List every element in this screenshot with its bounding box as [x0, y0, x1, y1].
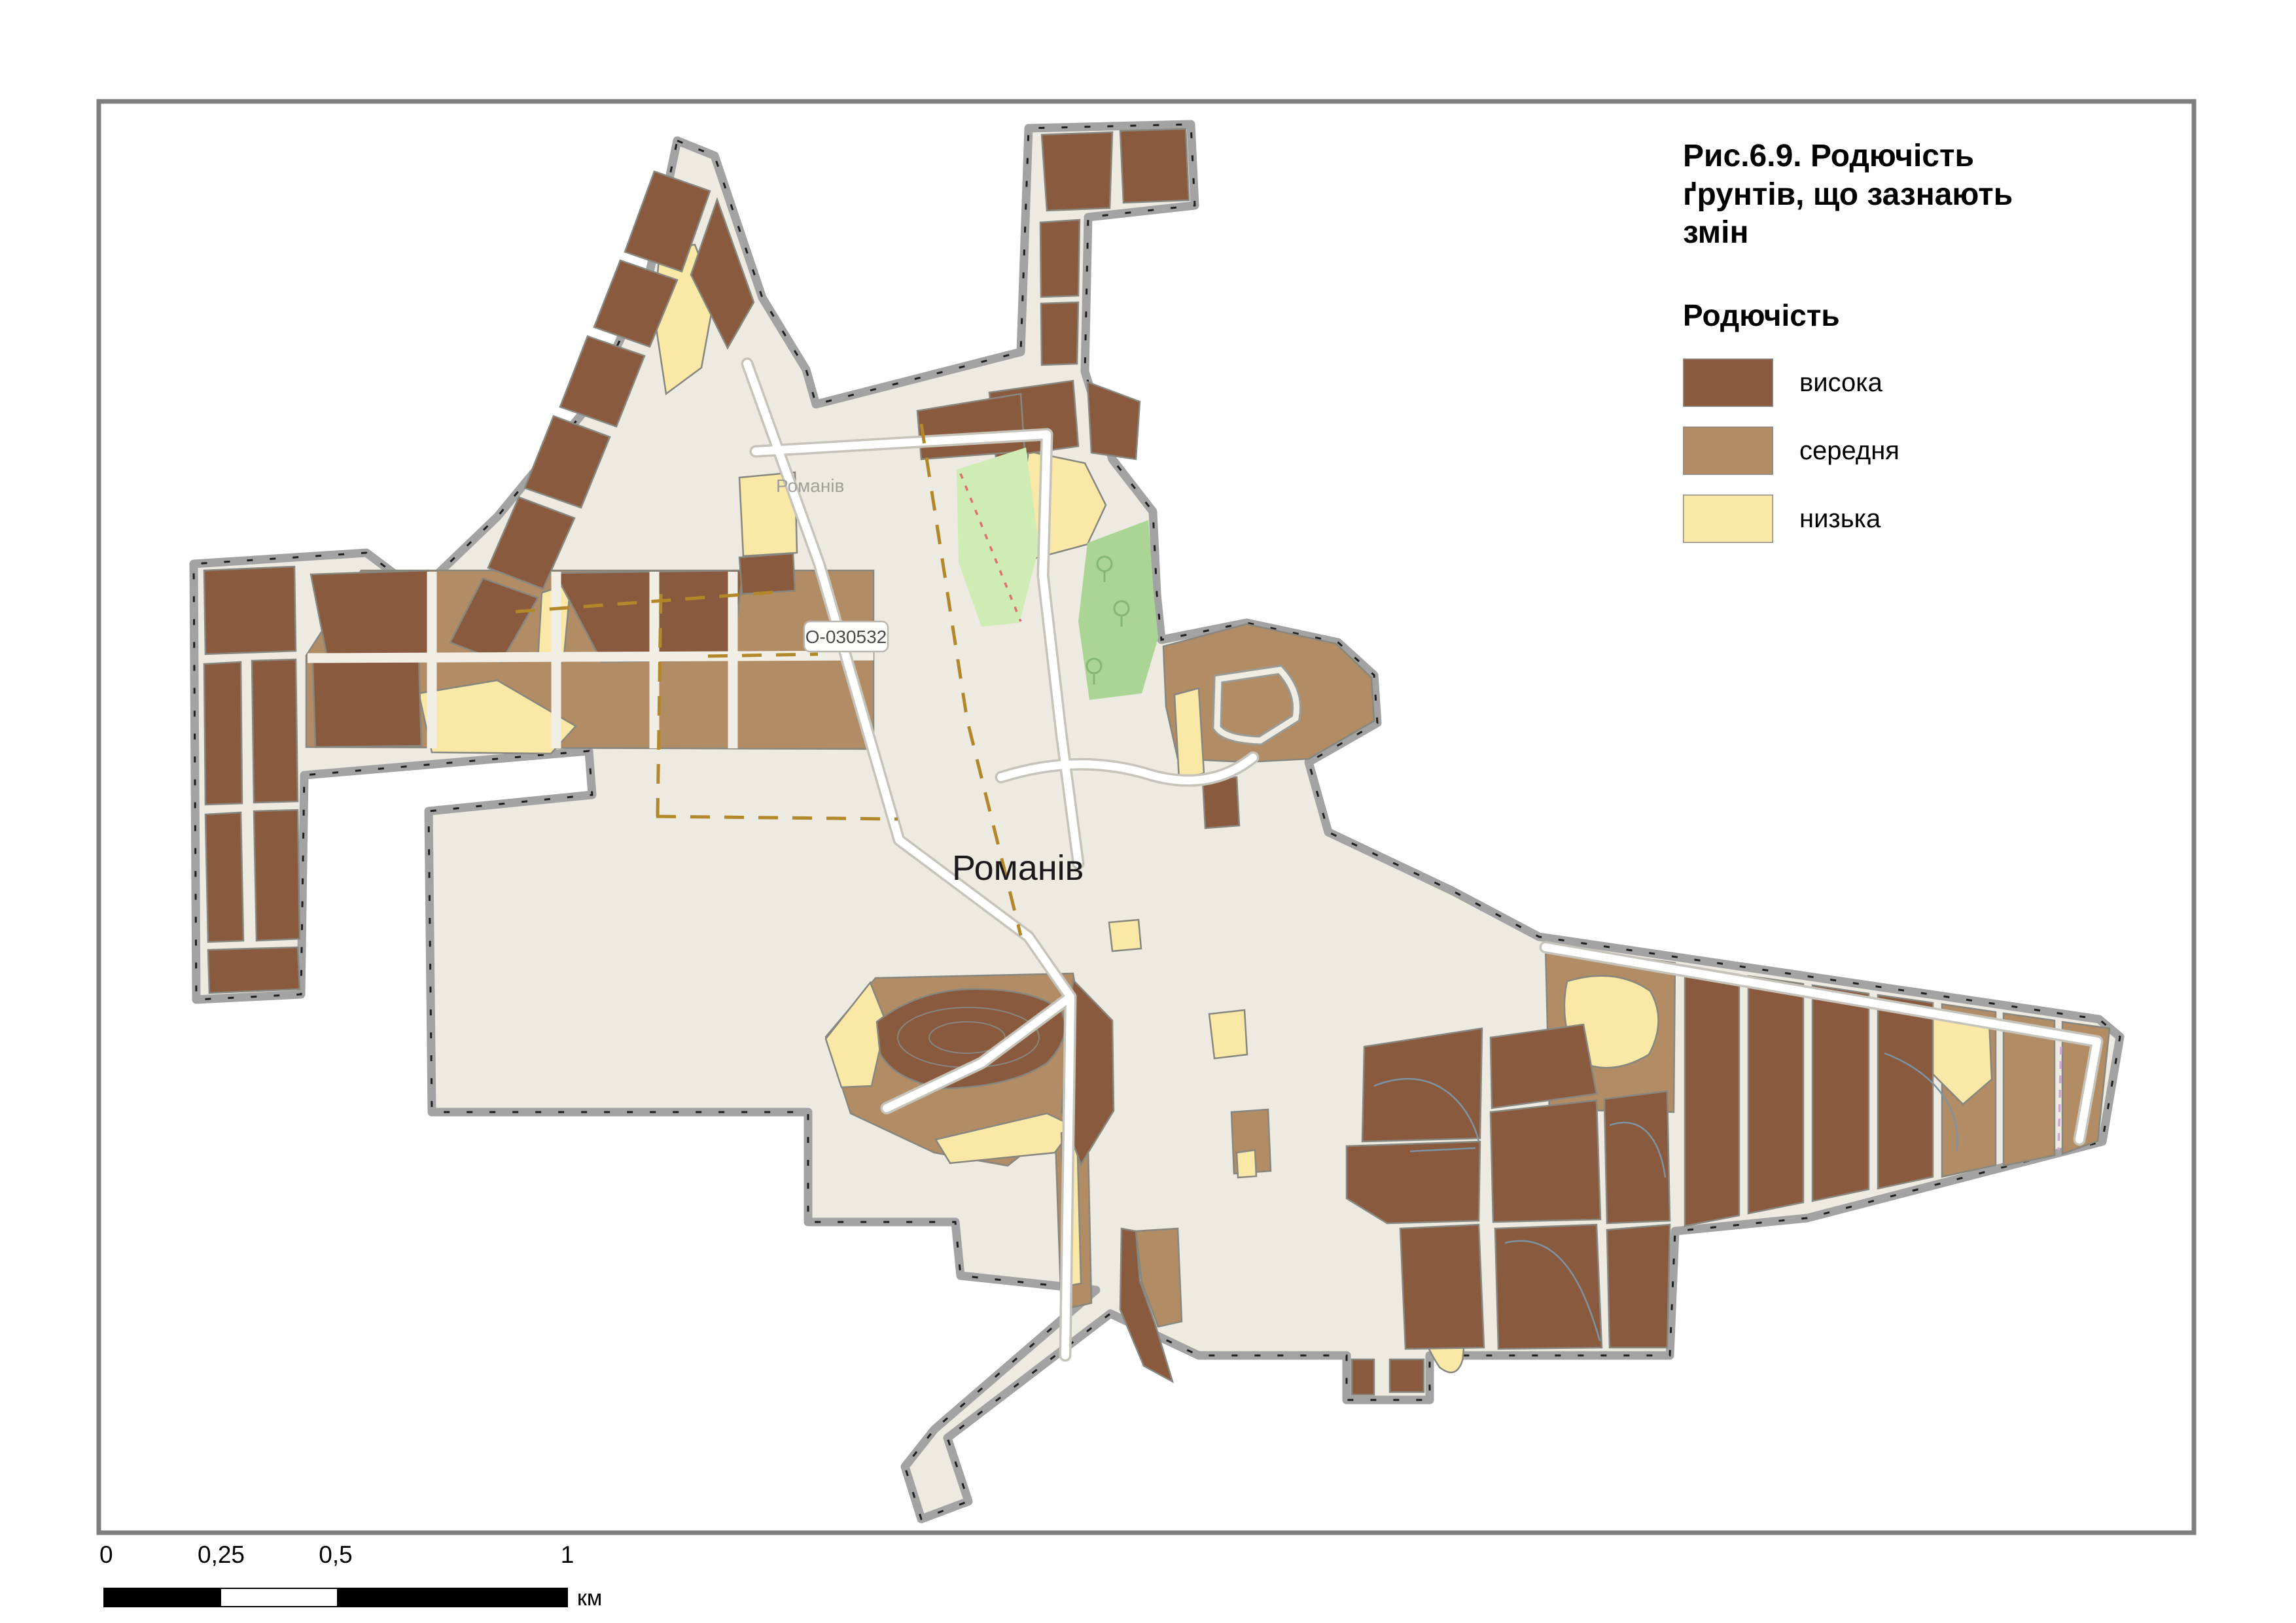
scalebar-white-segment — [221, 1589, 337, 1606]
legend-item-high: висока — [1683, 358, 2128, 408]
legend-item-label: низька — [1799, 504, 1881, 534]
settlement-label: Романів — [952, 848, 1084, 888]
legend: Родючість висока середня низька — [1683, 298, 2128, 562]
road-ref-label: О-030532 — [805, 627, 887, 647]
legend-item-medium: середня — [1683, 426, 2128, 476]
figure-page: { "figure": { "title": "Рис.6.9. Родючіс… — [0, 0, 2296, 1623]
scalebar-bar — [103, 1588, 568, 1607]
legend-swatch-medium — [1683, 427, 1773, 475]
scalebar-tick: 1 — [561, 1541, 574, 1569]
settlement-label-minor: Романів — [776, 476, 844, 496]
figure-title: Рис.6.9. Родючість ґрунтів, що зазнають … — [1683, 137, 2128, 253]
scalebar-tick: 0,25 — [198, 1541, 245, 1569]
scalebar-tick: 0,5 — [319, 1541, 352, 1569]
road-label-box: О-030532 — [804, 621, 888, 652]
legend-swatch-high — [1683, 358, 1773, 407]
legend-item-label: висока — [1799, 368, 1882, 398]
scalebar-tick: 0 — [99, 1541, 113, 1569]
legend-item-low: низька — [1683, 494, 2128, 544]
legend-heading: Родючість — [1683, 298, 2128, 333]
scalebar-unit: км — [577, 1586, 602, 1611]
legend-swatch-low — [1683, 495, 1773, 543]
legend-item-label: середня — [1799, 436, 1899, 466]
